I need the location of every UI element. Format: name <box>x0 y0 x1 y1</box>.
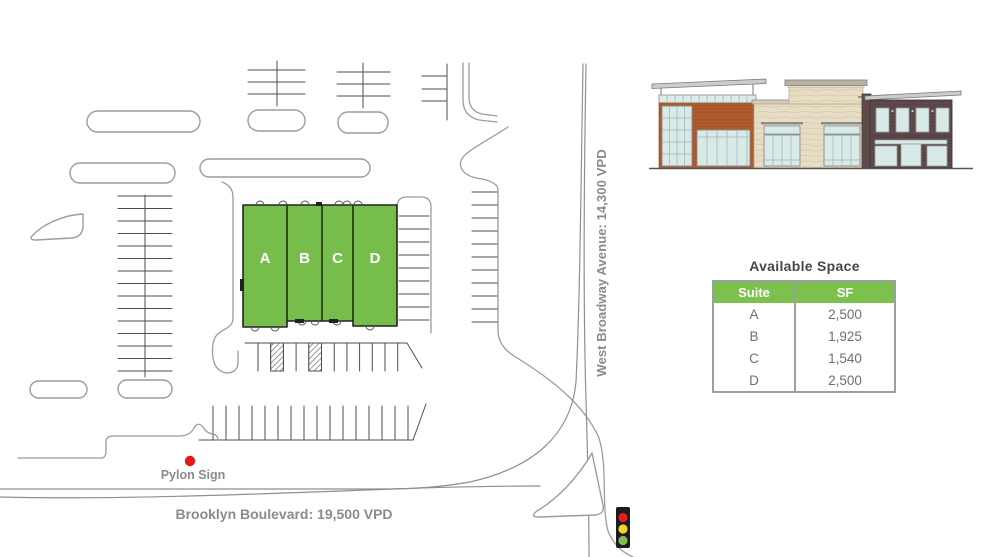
brooklyn-boulevard-road <box>0 486 540 498</box>
table-row: A 2,500 <box>714 303 894 325</box>
elevation-rendering <box>649 79 973 169</box>
traffic-light-icon <box>616 507 630 548</box>
accessible-stall <box>309 343 322 371</box>
parking-row-east <box>399 192 497 322</box>
sidewalk-curb <box>18 424 218 458</box>
leasing-flyer: A B C D Pylon Sign West Broadway Avenue:… <box>0 0 984 557</box>
site-plan-canvas: A B C D Pylon Sign West Broadway Avenue:… <box>0 0 984 557</box>
parking-row-top <box>248 61 447 120</box>
suite-cell: B <box>714 325 796 347</box>
west-broadway-label: West Broadway Avenue: 14,300 VPD <box>594 149 609 376</box>
elevation-left-tower <box>652 79 766 168</box>
column-header-suite: Suite <box>714 282 796 303</box>
building-footprint: A B C D <box>240 201 397 331</box>
traffic-island <box>533 453 603 517</box>
pylon-sign: Pylon Sign <box>161 456 226 482</box>
teardrop-island <box>31 214 83 240</box>
site-plan: A B C D Pylon Sign West Broadway Avenue:… <box>0 61 633 557</box>
suite-cell: D <box>714 369 796 391</box>
suite-c-label: C <box>332 250 343 267</box>
suite-b-label: B <box>299 250 310 267</box>
column-header-sf: SF <box>796 282 894 303</box>
table-body: A 2,500 B 1,925 C 1,540 D 2,500 <box>714 303 894 391</box>
table-header-row: Suite SF <box>714 282 894 303</box>
parking-row-bottom <box>199 404 426 440</box>
accessible-stall <box>271 343 284 371</box>
table-row: C 1,540 <box>714 347 894 369</box>
suite-cell: A <box>714 303 796 325</box>
table-row: D 2,500 <box>714 369 894 391</box>
sf-cell: 1,540 <box>796 347 894 369</box>
available-space-title: Available Space <box>712 258 897 274</box>
sf-cell: 1,925 <box>796 325 894 347</box>
parking-row-below-building <box>245 343 422 371</box>
sf-cell: 2,500 <box>796 303 894 325</box>
suite-a-label: A <box>260 250 271 267</box>
suite-cell: C <box>714 347 796 369</box>
suite-d-label: D <box>370 250 381 267</box>
elevation-center-section <box>752 80 876 168</box>
elevation-right-section <box>865 91 961 168</box>
brooklyn-boulevard-label: Brooklyn Boulevard: 19,500 VPD <box>175 506 392 522</box>
available-space-table: Suite SF A 2,500 B 1,925 C 1,540 D 2,500 <box>712 280 896 393</box>
parking-row-left <box>118 195 172 377</box>
table-row: B 1,925 <box>714 325 894 347</box>
pylon-sign-dot <box>185 456 195 466</box>
sf-cell: 2,500 <box>796 369 894 391</box>
pylon-sign-label: Pylon Sign <box>161 468 226 482</box>
